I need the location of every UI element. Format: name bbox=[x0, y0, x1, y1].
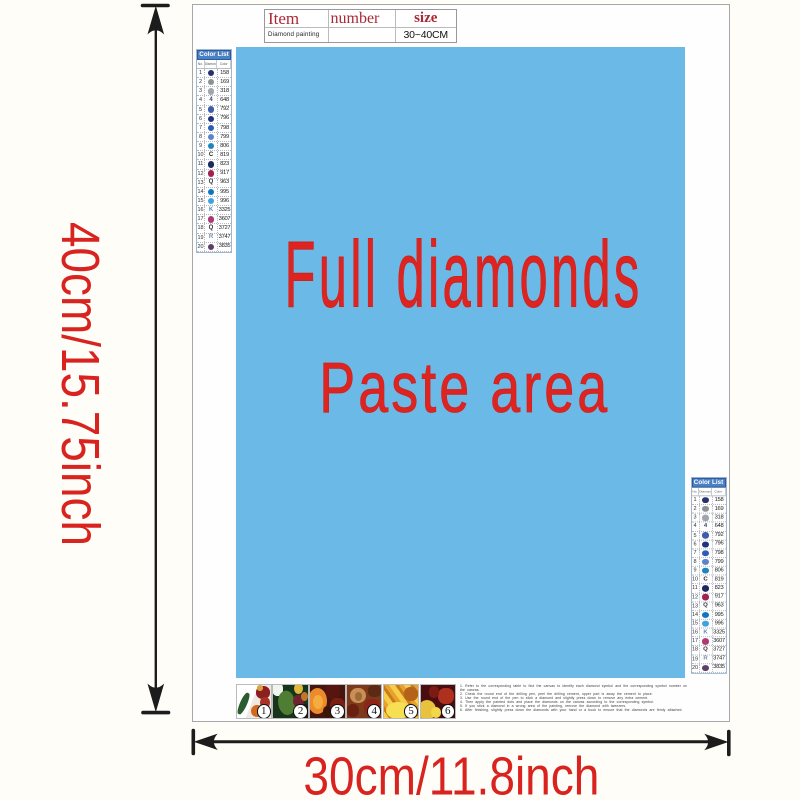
svg-text:Paste area: Paste area bbox=[319, 349, 610, 428]
svg-text:40cm/15.75inch: 40cm/15.75inch bbox=[50, 222, 110, 546]
svg-text:Full diamonds: Full diamonds bbox=[285, 222, 643, 327]
svg-text:30cm/11.8inch: 30cm/11.8inch bbox=[303, 747, 599, 800]
